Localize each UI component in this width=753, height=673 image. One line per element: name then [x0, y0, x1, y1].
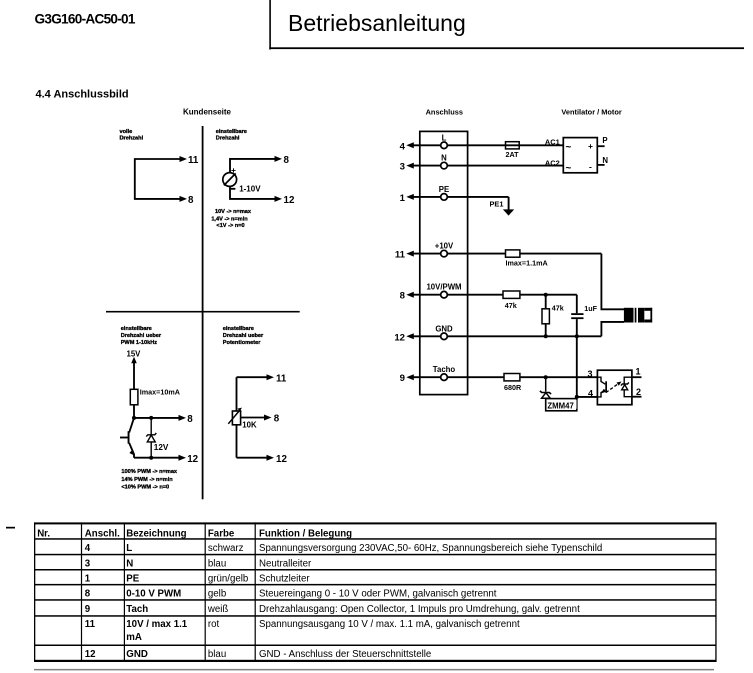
svg-text:Bezeichnung: Bezeichnung: [126, 528, 186, 539]
svg-text:1: 1: [636, 367, 641, 377]
svg-text:11: 11: [276, 373, 287, 384]
svg-text:rot: rot: [208, 619, 220, 630]
svg-text:4: 4: [85, 543, 91, 554]
svg-text:Steuereingang 0 - 10 V oder PW: Steuereingang 0 - 10 V oder PWM, galvani…: [259, 588, 497, 599]
svg-text:N: N: [126, 558, 133, 569]
svg-text:AC2: AC2: [545, 158, 560, 167]
svg-text:schwarz: schwarz: [208, 543, 244, 554]
svg-text:GND: GND: [435, 324, 453, 333]
svg-text:4: 4: [400, 141, 406, 152]
svg-text:ZMM47: ZMM47: [547, 402, 573, 411]
svg-text:Drehzahl ueber: Drehzahl ueber: [223, 333, 264, 339]
svg-text:gelb: gelb: [208, 588, 226, 599]
svg-text:1uF: 1uF: [584, 304, 597, 313]
svg-text:P: P: [602, 136, 607, 145]
svg-text:Imax=1.1mA: Imax=1.1mA: [506, 259, 548, 268]
svg-text:10V -> n=max: 10V -> n=max: [215, 209, 252, 215]
svg-text:Farbe: Farbe: [208, 528, 235, 539]
svg-text:2: 2: [636, 387, 641, 397]
svg-text:0-10 V PWM: 0-10 V PWM: [126, 588, 181, 599]
svg-text:Kundenseite: Kundenseite: [183, 108, 232, 117]
svg-text:Imax=10mA: Imax=10mA: [140, 388, 180, 397]
svg-text:L: L: [126, 543, 132, 554]
svg-text:PE1: PE1: [490, 200, 504, 209]
svg-text:Ventilator / Motor: Ventilator / Motor: [561, 108, 621, 117]
svg-text:Drehzahl ueber: Drehzahl ueber: [121, 333, 162, 339]
svg-text:Drehzahl: Drehzahl: [216, 136, 240, 142]
svg-text:GND - Anschluss der Steuerschn: GND - Anschluss der Steuerschnittstelle: [259, 649, 431, 660]
svg-text:grün/gelb: grün/gelb: [208, 573, 248, 584]
svg-text:4.4 Anschlussbild: 4.4 Anschlussbild: [36, 89, 129, 101]
svg-text:L: L: [442, 133, 447, 142]
svg-text:12: 12: [85, 649, 96, 660]
svg-text:8: 8: [187, 414, 193, 425]
svg-text:9: 9: [85, 604, 91, 615]
svg-text:4: 4: [588, 389, 593, 399]
svg-text:10V/PWM: 10V/PWM: [426, 283, 461, 292]
svg-text:Neutralleiter: Neutralleiter: [259, 558, 312, 569]
svg-text:12: 12: [187, 454, 198, 465]
svg-text:8: 8: [85, 588, 91, 599]
svg-text:11: 11: [395, 250, 406, 261]
svg-text:+: +: [588, 141, 593, 151]
svg-text:8: 8: [284, 155, 290, 166]
svg-text:blau: blau: [208, 558, 226, 569]
svg-text:einstellbare: einstellbare: [216, 129, 247, 135]
svg-text:47k: 47k: [552, 304, 564, 313]
svg-text:blau: blau: [208, 649, 226, 660]
svg-text:10V / max 1.1: 10V / max 1.1: [126, 619, 187, 630]
svg-text:PWM 1-10kHz: PWM 1-10kHz: [121, 340, 158, 346]
svg-text:~: ~: [566, 142, 572, 153]
svg-text:-: -: [589, 162, 592, 172]
svg-text:Tach: Tach: [126, 604, 148, 615]
svg-text:PE: PE: [126, 573, 139, 584]
svg-text:8: 8: [400, 291, 406, 302]
svg-text:2AT: 2AT: [506, 150, 520, 159]
svg-text:1,4V -> n=min: 1,4V -> n=min: [211, 216, 248, 222]
svg-text:Funktion / Belegung: Funktion / Belegung: [259, 528, 352, 539]
svg-text:Tacho: Tacho: [433, 365, 456, 374]
svg-text:Potentiometer: Potentiometer: [223, 340, 261, 346]
svg-text:12: 12: [276, 454, 287, 465]
svg-text:12: 12: [284, 195, 295, 206]
svg-text:9: 9: [400, 373, 405, 384]
svg-text:Anschl.: Anschl.: [85, 528, 120, 539]
svg-text:N: N: [602, 156, 608, 165]
svg-text:1-10V: 1-10V: [239, 185, 261, 194]
svg-text:8: 8: [274, 414, 280, 425]
svg-text:3: 3: [587, 369, 592, 379]
svg-text:3: 3: [85, 558, 91, 569]
svg-text:Spannungsausgang 10 V / max. 1: Spannungsausgang 10 V / max. 1.1 mA, gal…: [259, 619, 520, 630]
svg-text:PE: PE: [439, 185, 449, 194]
svg-text:11: 11: [188, 155, 199, 166]
svg-text:14% PWM -> n=min: 14% PWM -> n=min: [121, 477, 173, 483]
svg-text:Anschluss: Anschluss: [426, 108, 463, 117]
svg-text:~: ~: [566, 163, 572, 174]
svg-text:8: 8: [188, 195, 194, 206]
svg-text:Schutzleiter: Schutzleiter: [259, 573, 310, 584]
svg-text:3: 3: [400, 162, 405, 173]
svg-text:einstellbare: einstellbare: [121, 326, 152, 332]
svg-text:Betriebsanleitung: Betriebsanleitung: [288, 10, 466, 36]
svg-text:1: 1: [400, 193, 406, 204]
svg-text:<1V -> n=0: <1V -> n=0: [216, 223, 244, 229]
svg-text:+: +: [231, 165, 236, 175]
svg-text:47k: 47k: [505, 301, 517, 310]
svg-text:12V: 12V: [154, 443, 169, 452]
svg-text:Drehzahl: Drehzahl: [120, 136, 144, 142]
svg-text:Drehzahlausgang: Open Collecto: Drehzahlausgang: Open Collector, 1 Impul…: [259, 604, 580, 615]
svg-text:+10V: +10V: [435, 242, 454, 251]
svg-text:Spannungsversorgung 230VAC,50-: Spannungsversorgung 230VAC,50- 60Hz, Spa…: [259, 543, 602, 554]
svg-text:680R: 680R: [504, 383, 522, 392]
svg-text:10K: 10K: [242, 420, 257, 429]
svg-text:100% PWM -> n=max: 100% PWM -> n=max: [121, 469, 178, 475]
svg-text:weiß: weiß: [207, 604, 229, 615]
svg-text:<10% PWM -> n=0: <10% PWM -> n=0: [121, 484, 169, 490]
svg-text:mA: mA: [126, 632, 142, 643]
svg-text:AC1: AC1: [545, 137, 560, 146]
svg-text:GND: GND: [126, 649, 148, 660]
svg-text:1: 1: [85, 573, 91, 584]
svg-text:G3G160-AC50-01: G3G160-AC50-01: [35, 12, 136, 27]
svg-text:15V: 15V: [127, 350, 142, 359]
svg-text:11: 11: [85, 619, 96, 630]
svg-text:N: N: [441, 154, 447, 163]
svg-text:Nr.: Nr.: [37, 528, 50, 539]
svg-text:einstellbare: einstellbare: [223, 326, 254, 332]
svg-text:12: 12: [394, 332, 405, 343]
svg-text:volle: volle: [120, 129, 133, 135]
